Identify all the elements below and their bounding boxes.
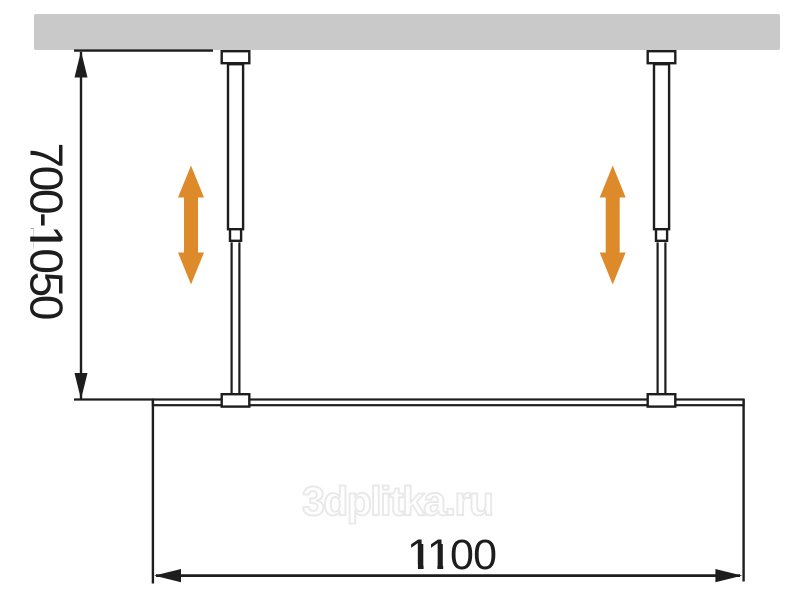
svg-text:700-1050: 700-1050 bbox=[20, 143, 72, 321]
svg-text:3dplitka.ru: 3dplitka.ru bbox=[302, 478, 494, 524]
